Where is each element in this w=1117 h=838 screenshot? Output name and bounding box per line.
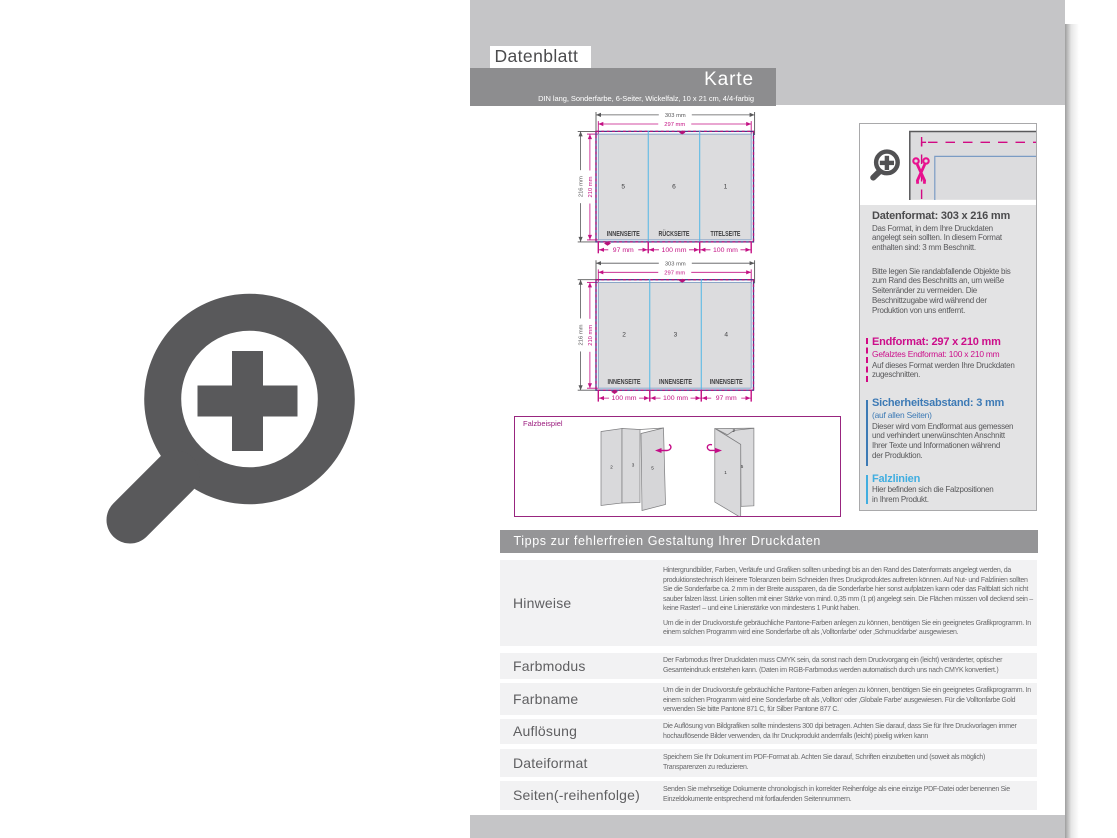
svg-text:216 mm: 216 mm <box>579 324 585 345</box>
svg-text:INNENSEITE: INNENSEITE <box>659 379 692 386</box>
svg-text:97 mm: 97 mm <box>716 396 737 402</box>
svg-text:5: 5 <box>651 466 654 471</box>
svg-text:210 mm: 210 mm <box>588 325 594 346</box>
svg-text:210 mm: 210 mm <box>588 176 594 197</box>
svg-text:5: 5 <box>621 183 625 190</box>
svg-text:4: 4 <box>724 332 728 339</box>
svg-text:1: 1 <box>724 470 727 475</box>
svg-text:3: 3 <box>632 463 635 468</box>
svg-text:3: 3 <box>674 332 678 339</box>
svg-text:5: 5 <box>741 464 744 469</box>
svg-text:INNENSEITE: INNENSEITE <box>608 379 641 386</box>
svg-text:INNENSEITE: INNENSEITE <box>607 231 640 238</box>
svg-text:100 mm: 100 mm <box>663 396 688 402</box>
svg-text:297 mm: 297 mm <box>664 122 685 128</box>
svg-text:INNENSEITE: INNENSEITE <box>710 379 743 386</box>
svg-text:2: 2 <box>610 465 613 470</box>
svg-text:216 mm: 216 mm <box>579 176 585 197</box>
svg-text:303 mm: 303 mm <box>665 261 686 267</box>
svg-text:303 mm: 303 mm <box>665 113 686 119</box>
svg-text:2: 2 <box>622 332 626 339</box>
svg-text:100 mm: 100 mm <box>612 396 637 402</box>
svg-text:6: 6 <box>672 183 676 190</box>
svg-text:RÜCKSEITE: RÜCKSEITE <box>658 229 689 238</box>
svg-text:1: 1 <box>724 183 728 190</box>
svg-text:TITELSEITE: TITELSEITE <box>710 231 740 238</box>
svg-text:297 mm: 297 mm <box>664 270 685 276</box>
svg-text:2: 2 <box>733 428 736 433</box>
